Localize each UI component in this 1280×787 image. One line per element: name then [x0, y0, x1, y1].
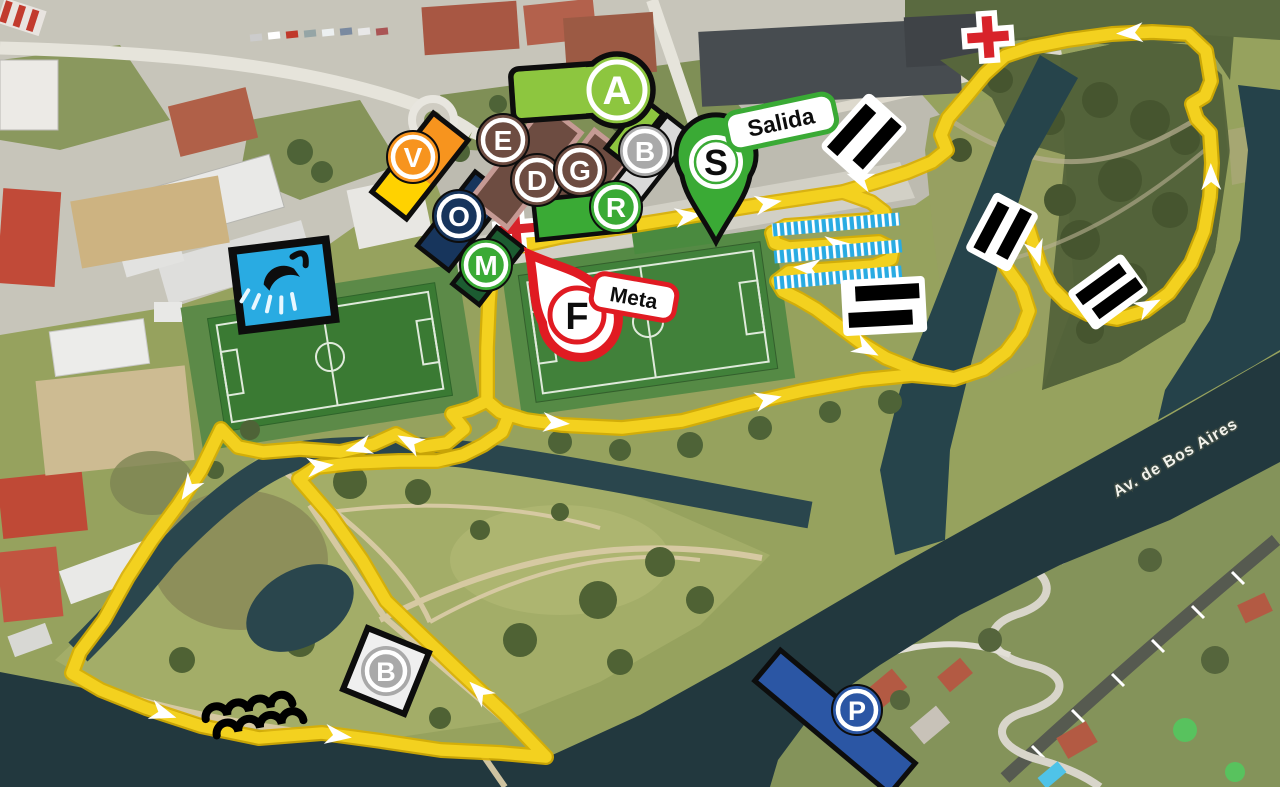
letter-m: M: [474, 250, 497, 281]
shower-icon: [232, 240, 335, 331]
letter-p: P: [848, 696, 866, 726]
start-letter: S: [704, 142, 728, 183]
letter-a: A: [603, 69, 632, 113]
letter-circle-r: R: [590, 181, 642, 233]
finish-letter: F: [565, 296, 588, 338]
letter-o: O: [448, 201, 470, 232]
letter-r: R: [606, 192, 626, 223]
race-map: Av. de Bos Aires: [0, 0, 1280, 787]
letter-b-bottom: B: [376, 657, 396, 687]
letter-d: D: [527, 165, 547, 196]
letter-circle-o: O: [433, 190, 485, 242]
letter-circle-v: V: [387, 131, 439, 183]
letter-circle-m: M: [460, 239, 512, 291]
letter-b-top: B: [635, 136, 655, 167]
letter-v: V: [404, 142, 423, 173]
map-canvas: Av. de Bos Aires: [0, 0, 1280, 787]
letter-circle-b-top: B: [619, 125, 671, 177]
letter-e: E: [494, 125, 513, 156]
letter-g: G: [569, 155, 591, 186]
planks-obstacle-icon: [841, 276, 928, 336]
